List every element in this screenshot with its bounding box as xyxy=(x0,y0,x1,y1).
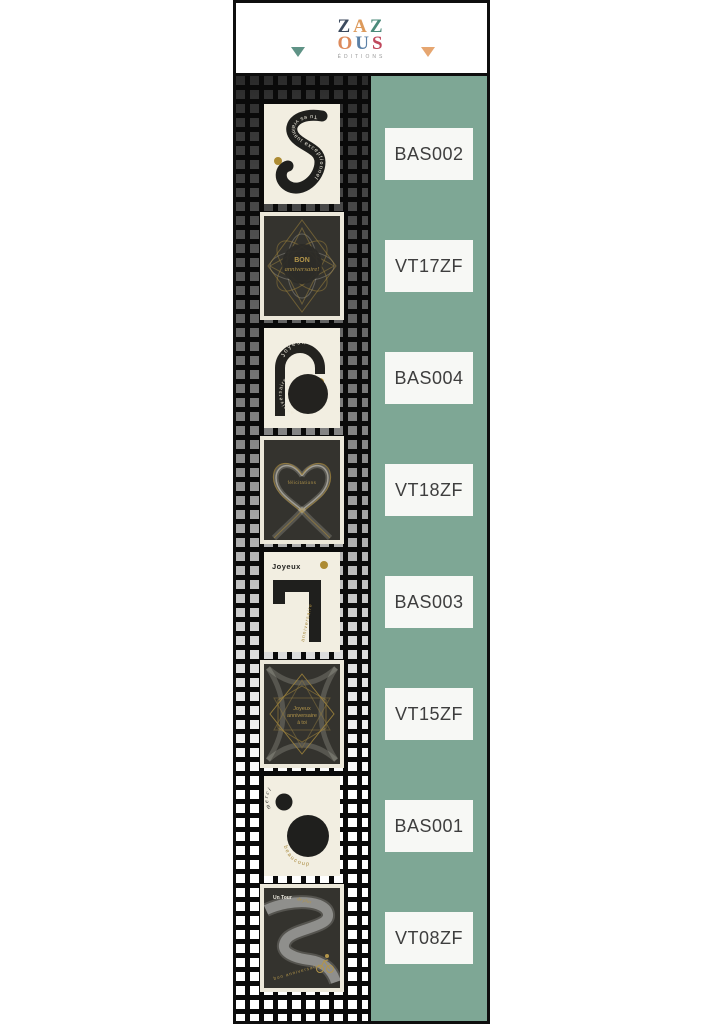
code-row: BAS002 xyxy=(371,98,487,210)
svg-text:BON: BON xyxy=(294,257,310,264)
code-row: BAS001 xyxy=(371,770,487,882)
cards-column: Tu es vraiment exceptionnel xyxy=(236,76,371,1021)
product-code-badge[interactable]: VT17ZF xyxy=(385,240,473,292)
product-code-badge[interactable]: BAS004 xyxy=(385,352,473,404)
string-art-card-art: Joyeux anniversaire à toi xyxy=(264,664,340,764)
card-thumbnail-bas002[interactable]: Tu es vraiment exceptionnel xyxy=(264,104,340,204)
snake-s-card-art: Tu es vraiment exceptionnel xyxy=(264,104,340,204)
svg-text:félicitations: félicitations xyxy=(288,480,317,485)
header: ZAZ OUS ÉDITIONS xyxy=(236,3,487,76)
card-thumbnail-bas004[interactable]: Joyeux anniversaire xyxy=(264,328,340,428)
logo-subtext: ÉDITIONS xyxy=(338,54,386,60)
card-row: BON anniversaire! xyxy=(236,210,368,322)
product-code-badge[interactable]: BAS003 xyxy=(385,576,473,628)
code-row: BAS004 xyxy=(371,322,487,434)
code-row: VT17ZF xyxy=(371,210,487,322)
card-row: Joyeux anniversaire à toi xyxy=(236,658,368,770)
svg-text:Joyeux: Joyeux xyxy=(293,706,311,712)
product-code-badge[interactable]: VT15ZF xyxy=(385,688,473,740)
promo-banner: ZAZ OUS ÉDITIONS Tu es vraiment exceptio… xyxy=(233,0,490,1024)
card-row: merci beaucoup xyxy=(236,770,368,882)
card-thumbnail-vt15zf[interactable]: Joyeux anniversaire à toi xyxy=(260,660,344,768)
codes-column: BAS002 VT17ZF BAS004 VT18ZF BAS003 VT15Z… xyxy=(371,76,487,1021)
cyclist-road-card-art: Un Tour de plus bon anniversaire xyxy=(264,888,340,988)
card-thumbnail-bas003[interactable]: Joyeux anniversaire xyxy=(264,552,340,652)
bracket-card-art: Joyeux anniversaire xyxy=(264,552,340,652)
code-row: BAS003 xyxy=(371,546,487,658)
card-thumbnail-vt18zf[interactable]: félicitations xyxy=(260,436,344,544)
zazous-logo: ZAZ OUS ÉDITIONS xyxy=(337,18,385,60)
card-row: Tu es vraiment exceptionnel xyxy=(236,98,368,210)
card-thumbnail-vt08zf[interactable]: Un Tour de plus bon anniversaire xyxy=(260,884,344,992)
svg-text:anniversaire: anniversaire xyxy=(287,713,317,719)
svg-text:anniversaire!: anniversaire! xyxy=(285,266,320,273)
arch-circle-card-art: Joyeux anniversaire xyxy=(264,328,340,428)
banner-body: Tu es vraiment exceptionnel xyxy=(236,76,487,1021)
merci-circles-card-art: merci beaucoup xyxy=(264,776,340,876)
gold-dot-icon xyxy=(274,157,282,165)
code-row: VT15ZF xyxy=(371,658,487,770)
card-row: Joyeux anniversaire xyxy=(236,322,368,434)
card-row: Joyeux anniversaire xyxy=(236,546,368,658)
product-code-badge[interactable]: VT18ZF xyxy=(385,464,473,516)
orange-triangle-icon xyxy=(421,47,435,57)
teal-triangle-icon xyxy=(291,47,305,57)
card-row: félicitations xyxy=(236,434,368,546)
product-code-badge[interactable]: VT08ZF xyxy=(385,912,473,964)
spirograph-card-art: BON anniversaire! xyxy=(264,216,340,316)
logo-line-2: OUS xyxy=(337,35,385,52)
svg-text:Joyeux: Joyeux xyxy=(272,562,301,571)
product-code-badge[interactable]: BAS001 xyxy=(385,800,473,852)
gold-dot-icon xyxy=(320,561,328,569)
product-code-badge[interactable]: BAS002 xyxy=(385,128,473,180)
svg-text:à toi: à toi xyxy=(297,720,306,726)
card-thumbnail-vt17zf[interactable]: BON anniversaire! xyxy=(260,212,344,320)
code-row: VT08ZF xyxy=(371,882,487,994)
ribbon-heart-card-art: félicitations xyxy=(264,440,340,540)
card-row: Un Tour de plus bon anniversaire xyxy=(236,882,368,994)
card-thumbnail-bas001[interactable]: merci beaucoup xyxy=(264,776,340,876)
code-row: VT18ZF xyxy=(371,434,487,546)
svg-text:Un Tour: Un Tour xyxy=(273,895,292,901)
